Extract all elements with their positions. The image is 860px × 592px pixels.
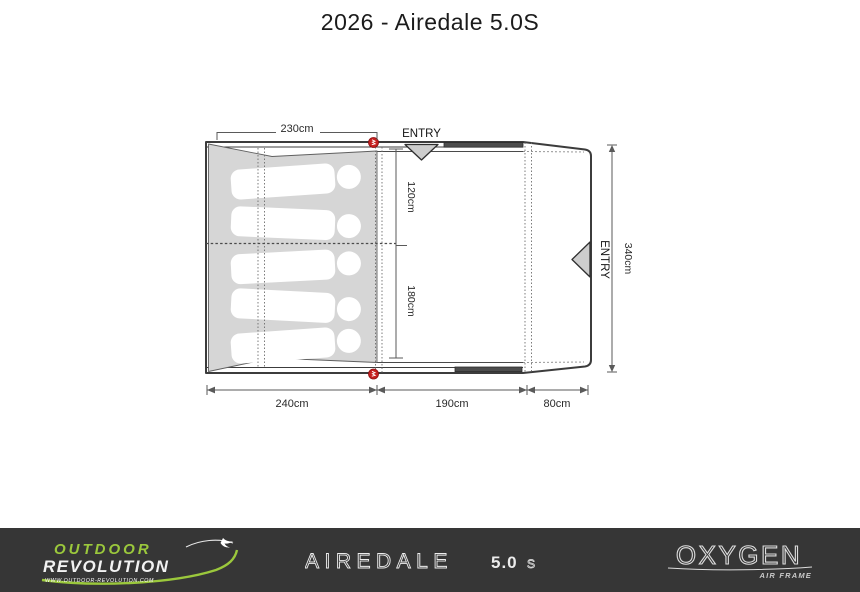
arrowhead-right-icon xyxy=(580,387,588,394)
sleeping-bag-body xyxy=(230,288,335,323)
dimension-label-180: 180cm xyxy=(405,285,417,317)
brand-line2: REVOLUTION xyxy=(43,557,169,576)
brand-line1: OUTDOOR xyxy=(54,541,152,558)
footer-brand-bar: OUTDOOR REVOLUTION WWW.OUTDOOR-REVOLUTIO… xyxy=(0,528,860,592)
floorplan-diagram: ENTRY ENTRY 230cm 120cm 180cm xyxy=(0,0,860,470)
dimension-label-230: 230cm xyxy=(280,123,313,135)
oxygen-airframe-logo: OXYGEN AIR FRAME xyxy=(654,537,824,583)
dimension-label-80: 80cm xyxy=(544,398,571,410)
top-vent-bar xyxy=(444,143,523,148)
arrowhead-left-icon xyxy=(207,387,215,394)
bottom-vent-bar xyxy=(455,367,522,372)
sleeping-bag-body xyxy=(230,249,335,284)
cable-entry-marker xyxy=(369,369,379,379)
model-name: AIREDALE xyxy=(305,550,453,573)
tent-floorplan-page: 2026 - Airedale 5.0S xyxy=(0,0,860,592)
arrowhead-right-icon xyxy=(369,387,377,394)
bottom-dimension-chain xyxy=(207,385,588,395)
dimension-label-190: 190cm xyxy=(435,398,468,410)
dimension-label-340: 340cm xyxy=(622,243,634,275)
arrowhead-right-icon xyxy=(519,387,527,394)
arrowhead-left-icon xyxy=(527,387,535,394)
arrowhead-up-icon xyxy=(609,145,615,152)
dimension-label-120: 120cm xyxy=(405,181,417,213)
arrowhead-down-icon xyxy=(609,365,615,372)
dimension-label-240: 240cm xyxy=(275,398,308,410)
model-logo: AIREDALE 5.0 S xyxy=(305,542,555,578)
model-variant: S xyxy=(527,557,535,571)
brand-url: WWW.OUTDOOR-REVOLUTION.COM xyxy=(45,578,154,584)
entry-top-label: ENTRY xyxy=(402,128,441,140)
frame-brand: OXYGEN xyxy=(676,540,802,570)
arrowhead-left-icon xyxy=(377,387,385,394)
frame-sub: AIR FRAME xyxy=(759,571,812,580)
outdoor-revolution-logo: OUTDOOR REVOLUTION WWW.OUTDOOR-REVOLUTIO… xyxy=(40,535,240,585)
model-size: 5.0 xyxy=(491,553,518,572)
entry-right-label: ENTRY xyxy=(598,240,610,279)
sleeping-bag-body xyxy=(230,206,335,241)
